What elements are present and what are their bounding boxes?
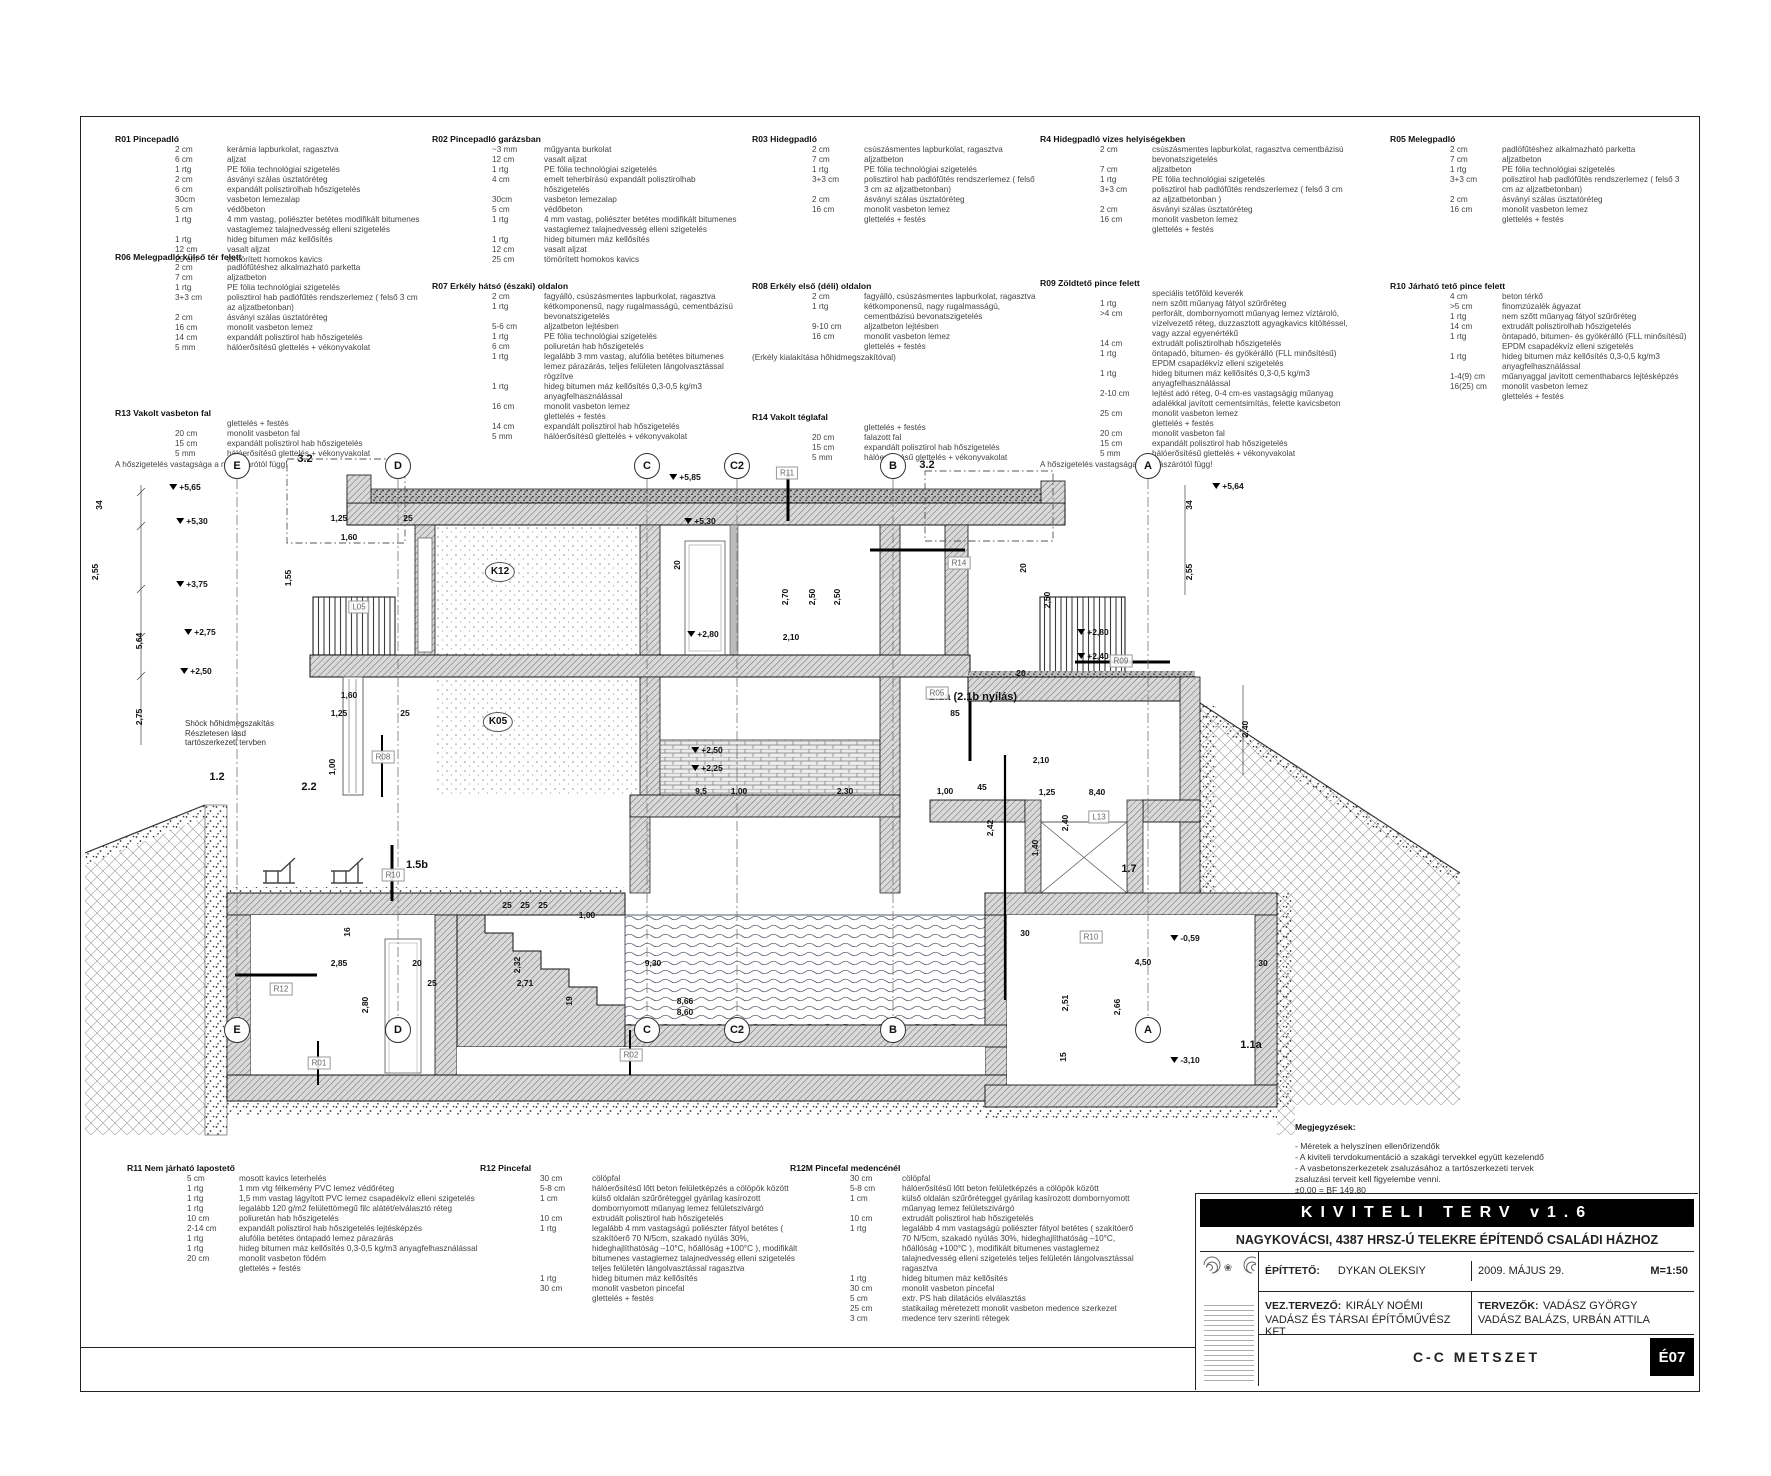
grid-bubble-C2-top: C2 — [724, 453, 750, 479]
stair-wall — [435, 915, 457, 1075]
schedule-R09: R09 Zöldtető pince felettspeciális tetőf… — [1040, 278, 1352, 470]
dim-label: 9,5 — [695, 786, 707, 796]
schedule-R10: R10 Járható tető pince felett4 cmbeton t… — [1390, 281, 1692, 402]
dim-label: 2,70 — [780, 589, 790, 606]
ref-tag-R10: R10 — [382, 869, 405, 882]
room-K05 — [435, 677, 640, 795]
dim-label: 4,50 — [1135, 957, 1152, 967]
detail-marker: 1.1a — [1240, 1039, 1261, 1051]
grid-bubble-B-bottom: B — [880, 1017, 906, 1043]
dim-label: 2,30 — [837, 786, 854, 796]
detail-marker: 1.5b — [406, 859, 428, 871]
wall-R14 — [945, 525, 968, 663]
dim-label: 34 — [94, 500, 104, 509]
basement-wall-left — [227, 915, 251, 1077]
schedule-R12M: R12M Pincefal medencénél30 cmcölöpfal5-8… — [790, 1163, 1135, 1324]
retaining-wall-right — [1180, 677, 1200, 907]
dim-label: 1,25 — [331, 708, 348, 718]
client-label: ÉPÍTTETŐ: — [1265, 1265, 1320, 1277]
elevation-marker: +2,50 — [691, 745, 723, 757]
slab-right-000 — [930, 800, 1025, 822]
dim-label: 2,55 — [1184, 564, 1194, 581]
dim-label: 8,60 — [677, 1007, 694, 1017]
right-floor-slab — [985, 1085, 1277, 1107]
detail-marker: 3.2 — [919, 459, 934, 471]
dim-label: 9,30 — [645, 958, 662, 968]
schedule-R12: R12 Pincefal30 cmcölöpfal5-8 cmhálóerősí… — [480, 1163, 798, 1304]
ref-tag-R05: R05 — [926, 687, 949, 700]
dim-label: 2,42 — [985, 820, 995, 837]
dim-label: 1,25 — [331, 513, 348, 523]
drainage-gravel-right — [1200, 705, 1216, 893]
dim-label: 2,80 — [360, 997, 370, 1014]
section-drawing: EDCC2BAEDCC2BA+5,65+5,30+3,75+2,75+2,50+… — [85, 445, 1465, 1160]
elevation-marker: +2,40 — [1077, 651, 1109, 663]
dim-label: 20 — [1016, 668, 1025, 678]
plan-scale: M=1:50 — [1650, 1265, 1688, 1277]
dim-label: 2,71 — [517, 978, 534, 988]
section-geometry — [85, 445, 1465, 1160]
schedule-R02: R02 Pincepadló garázsban~3 mmműgyanta bu… — [432, 134, 740, 265]
dim-label: 2,50 — [1042, 592, 1052, 609]
designers-label: TERVEZŐK: — [1478, 1300, 1538, 1312]
right-room-ceiling — [985, 893, 1277, 915]
dim-label: 2,85 — [331, 958, 348, 968]
drawing-sheet: R01 Pincepadló2 cmkerámia lapburkolat, r… — [0, 0, 1771, 1476]
company-logo: ❀ — [1200, 1251, 1259, 1386]
dim-label: 1,00 — [937, 786, 954, 796]
dim-label: 2,10 — [1033, 755, 1050, 765]
green-roof-layer — [347, 489, 1065, 503]
schedule-R11: R11 Nem járható lapostető5 cmmosott kavi… — [127, 1163, 479, 1274]
grid-bubble-B-top: B — [880, 453, 906, 479]
ref-tag-R02: R02 — [620, 1049, 643, 1062]
dim-label: 2,75 — [134, 709, 144, 726]
grid-bubble-C2-bottom: C2 — [724, 1017, 750, 1043]
parapet-left — [347, 475, 371, 503]
ref-tag-R09: R09 — [1110, 655, 1133, 668]
window-L05 — [418, 538, 432, 652]
dim-label: 25 — [427, 978, 436, 988]
basement-floor-slab — [227, 1075, 1007, 1101]
ref-tag-R01: R01 — [308, 1057, 331, 1070]
dim-label: 34 — [1184, 500, 1194, 509]
dim-label: 1,55 — [283, 570, 293, 587]
detail-marker: 1.2 — [209, 771, 224, 783]
gravel-subbase — [227, 1101, 1007, 1115]
dim-label: 2,66 — [1112, 999, 1122, 1016]
ref-tag-R11: R11 — [776, 467, 798, 480]
sheet-number: É07 — [1650, 1338, 1694, 1376]
notes-title: Megjegyzések: — [1295, 1122, 1695, 1133]
elevation-marker: +5,30 — [176, 516, 208, 528]
dim-label: 2,40 — [1060, 815, 1070, 832]
grid-bubble-D-bottom: D — [385, 1017, 411, 1043]
schedule-R4: R4 Hidegpadló vizes helyiségekben2 cmcsú… — [1040, 134, 1348, 235]
project-title: NAGYKOVÁCSI, 4387 HRSZ-Ú TELEKRE ÉPÍTEND… — [1200, 1227, 1694, 1252]
terrace-bedding — [227, 887, 625, 893]
ref-tag-R14: R14 — [948, 557, 971, 570]
wall-B-ground — [880, 677, 900, 795]
dim-label: 45 — [977, 782, 986, 792]
dim-label: 25 — [400, 708, 409, 718]
note-line: - A vasbetonszerkezetek zsaluzásához a t… — [1295, 1163, 1695, 1174]
detail-marker: 3.2 — [297, 453, 312, 465]
pool-floor-slab — [625, 1025, 1007, 1047]
thermal-break-note: Shöck hőhidmegszakítás Részletesen lásd … — [185, 719, 289, 748]
grid-bubble-A-top: A — [1135, 453, 1161, 479]
basement-room-right — [1007, 915, 1255, 1085]
green-roof-terrace — [968, 671, 1195, 677]
dim-label: 2,10 — [783, 632, 800, 642]
terrain-left — [85, 817, 205, 1135]
main-title: KIVITELI TERV v1.6 — [1200, 1199, 1694, 1227]
schedule-R07: R07 Erkély hátsó (északi) oldalon2 cmfag… — [432, 281, 744, 442]
note-line: - A kiviteli tervdokumentáció a szakági … — [1295, 1152, 1695, 1163]
schedule-R06: R06 Melegpadló külső tér felett2 cmpadló… — [115, 252, 427, 353]
drainage-gravel-left — [205, 805, 227, 1135]
dim-label: 30 — [1258, 958, 1267, 968]
elevation-marker: -3,10 — [1170, 1055, 1199, 1067]
ref-tag-R12: R12 — [270, 983, 293, 996]
client-name: DYKAN OLEKSIY — [1338, 1265, 1426, 1277]
dim-label: 25 — [520, 900, 529, 910]
dim-label: 2,32 — [512, 957, 522, 974]
sheet-title: C-C METSZET — [1259, 1349, 1694, 1365]
dim-label: 85 — [950, 708, 959, 718]
elevation-marker: +2,50 — [180, 666, 212, 678]
dim-label: 15 — [1058, 1052, 1068, 1061]
sheet-divider-line — [80, 1347, 1196, 1348]
schedule-R03: R03 Hidegpadló2 cmcsúszásmentes lapburko… — [752, 134, 1037, 225]
designer-2: VADÁSZ BALÁZS, URBÁN ATTILA — [1478, 1314, 1688, 1326]
dim-label: 20 — [1018, 563, 1028, 572]
notes-lines: - Méretek a helyszínen ellenőrizendők- A… — [1295, 1141, 1695, 1196]
dim-label: 20 — [672, 560, 682, 569]
grid-bubble-E-top: E — [224, 453, 250, 479]
ref-tag-R08: R08 — [372, 751, 395, 764]
elevation-marker: +5,30 — [684, 516, 716, 528]
floor-slab-280 — [310, 655, 970, 677]
terrace-deck-slab — [227, 893, 625, 915]
dim-label: 2,40 — [1240, 721, 1250, 738]
dim-label: 1,25 — [1039, 787, 1056, 797]
plant-space-R02 — [457, 1047, 985, 1075]
title-block: KIVITELI TERV v1.6 NAGYKOVÁCSI, 4387 HRS… — [1195, 1193, 1698, 1390]
dim-label: 30 — [1020, 928, 1029, 938]
dim-label: 1,00 — [327, 759, 337, 776]
dim-label: 19 — [564, 996, 574, 1005]
grid-bubble-E-bottom: E — [224, 1017, 250, 1043]
note-line: - Méretek a helyszínen ellenőrizendők — [1295, 1141, 1695, 1152]
ref-tag-R10: R10 — [1080, 931, 1103, 944]
elevation-marker: +2,25 — [691, 763, 723, 775]
dim-label: 2,55 — [90, 564, 100, 581]
lead-designer: KIRÁLY NOÉMI — [1346, 1300, 1423, 1312]
dim-label: 16 — [342, 927, 352, 936]
detail-marker: 2.2 — [301, 781, 316, 793]
schedule-R08: R08 Erkély első (déli) oldalon2 cmfagyál… — [752, 281, 1052, 363]
dim-label: 1,60 — [341, 532, 358, 542]
dim-label: 25 — [502, 900, 511, 910]
note-line: zsaluzási terveit kell figyelembe venni. — [1295, 1174, 1695, 1185]
wall-C-ground — [640, 677, 660, 795]
schedule-R01: R01 Pincepadló2 cmkerámia lapburkolat, r… — [115, 134, 427, 265]
schedule-R05: R05 Melegpadló2 cmpadlófűtéshez alkalmaz… — [1390, 134, 1688, 225]
pool-stairs — [457, 915, 625, 1047]
dim-label: 1,40 — [1030, 840, 1040, 857]
grid-bubble-C-top: C — [634, 453, 660, 479]
elevation-marker: +3,75 — [176, 579, 208, 591]
dim-label: 8,66 — [677, 996, 694, 1006]
elevation-marker: +5,64 — [1212, 481, 1244, 493]
lead-designer-label: VEZ.TERVEZŐ: — [1265, 1300, 1341, 1312]
dim-label: 25 — [403, 513, 412, 523]
basement-wall-far-right — [1255, 915, 1277, 1085]
ref-tag-L13: L13 — [1088, 811, 1109, 824]
shaft-wall — [1127, 800, 1143, 893]
elevation-marker: +2,80 — [687, 629, 719, 641]
notes-block: Megjegyzések: - Méretek a helyszínen ell… — [1295, 1122, 1695, 1196]
detail-marker: 1.7 — [1121, 863, 1136, 875]
dim-label: 8,40 — [1089, 787, 1106, 797]
wall-C-upper — [640, 525, 660, 655]
dim-label: 1,00 — [731, 786, 748, 796]
dim-label: 5,64 — [134, 633, 144, 650]
dim-label: 20 — [412, 958, 421, 968]
ref-tag-L05: L05 — [348, 601, 369, 614]
elevation-marker: +5,85 — [669, 472, 701, 484]
elevation-marker: +5,65 — [169, 482, 201, 494]
dim-label: 25 — [538, 900, 547, 910]
wall-B-upper — [880, 525, 900, 655]
dim-label: 2,51 — [1060, 995, 1070, 1012]
elevation-marker: +2,80 — [1077, 627, 1109, 639]
svg-text:❀: ❀ — [1224, 1263, 1232, 1274]
grid-bubble-A-bottom: A — [1135, 1017, 1161, 1043]
grid-bubble-D-top: D — [385, 453, 411, 479]
dim-label: 2,50 — [807, 589, 817, 606]
room-K12 — [435, 525, 640, 655]
dim-label: 1,00 — [579, 910, 596, 920]
elevation-marker: -0,59 — [1170, 933, 1199, 945]
elevation-marker: +2,75 — [184, 627, 216, 639]
plan-date: 2009. MÁJUS 29. — [1478, 1265, 1564, 1277]
dim-label: 1,60 — [341, 690, 358, 700]
grid-bubble-C-bottom: C — [634, 1017, 660, 1043]
dim-label: 2,50 — [832, 589, 842, 606]
designer-1: VADÁSZ GYÖRGY — [1543, 1300, 1638, 1312]
slab-under-band — [630, 795, 900, 817]
